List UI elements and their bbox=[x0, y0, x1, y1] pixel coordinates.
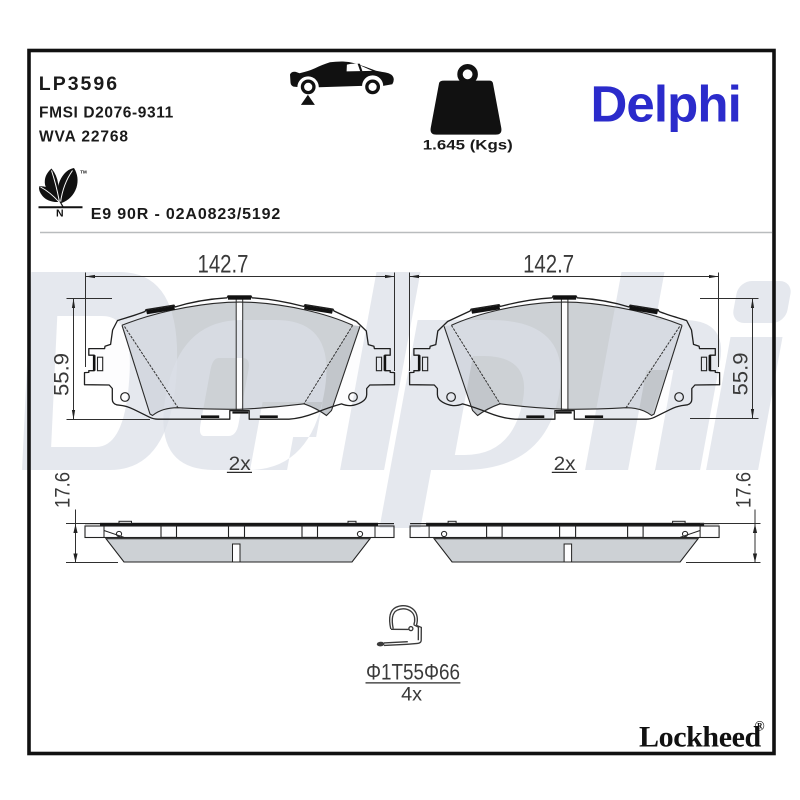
svg-text:4x: 4x bbox=[401, 685, 423, 706]
svg-text:Delphi: Delphi bbox=[591, 76, 741, 133]
svg-text:17.6: 17.6 bbox=[733, 472, 756, 508]
svg-text:TM: TM bbox=[80, 170, 87, 175]
svg-text:142.7: 142.7 bbox=[523, 251, 574, 279]
svg-text:55.9: 55.9 bbox=[729, 353, 753, 396]
svg-text:E9 90R - 02A0823/5192: E9 90R - 02A0823/5192 bbox=[91, 206, 281, 223]
svg-text:Φ1T55Φ66: Φ1T55Φ66 bbox=[366, 660, 460, 685]
svg-text:®: ® bbox=[755, 719, 765, 734]
svg-text:142.7: 142.7 bbox=[198, 251, 249, 279]
svg-text:WVA 22768: WVA 22768 bbox=[39, 129, 129, 146]
svg-text:1.645 (Kgs): 1.645 (Kgs) bbox=[423, 137, 513, 153]
svg-text:17.6: 17.6 bbox=[52, 472, 75, 508]
svg-text:55.9: 55.9 bbox=[50, 353, 74, 396]
svg-text:Lockheed: Lockheed bbox=[639, 721, 762, 754]
svg-text:FMSI D2076-9311: FMSI D2076-9311 bbox=[39, 105, 174, 122]
svg-text:N: N bbox=[56, 208, 64, 220]
svg-text:LP3596: LP3596 bbox=[39, 73, 119, 95]
